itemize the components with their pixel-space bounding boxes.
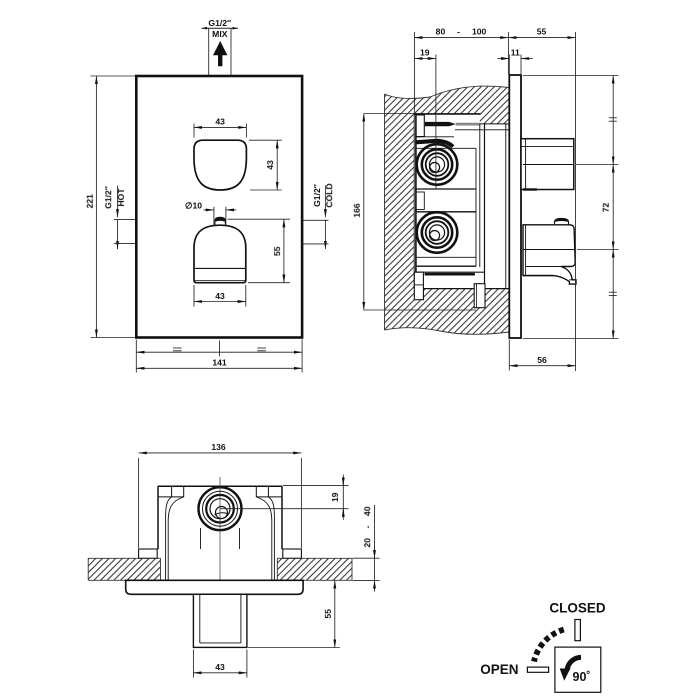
svg-text:80 - 100: 80 - 100	[436, 26, 487, 36]
svg-text:72: 72	[601, 203, 611, 213]
svg-text:43: 43	[215, 291, 225, 301]
svg-text:56: 56	[537, 355, 547, 365]
svg-text:90˚: 90˚	[573, 670, 591, 684]
svg-text:43: 43	[215, 662, 225, 672]
svg-text:166: 166	[352, 203, 362, 218]
svg-text:11: 11	[511, 48, 520, 58]
svg-text:55: 55	[272, 246, 282, 256]
svg-text:G1/2″: G1/2″	[312, 184, 322, 207]
svg-text:136: 136	[211, 442, 226, 452]
svg-text:19: 19	[330, 492, 340, 502]
svg-text:OPEN: OPEN	[480, 662, 518, 677]
svg-text:19: 19	[420, 48, 430, 58]
svg-text:55: 55	[323, 609, 333, 619]
svg-text:∅10: ∅10	[185, 201, 202, 211]
svg-text:55: 55	[537, 26, 547, 36]
svg-text:MIX: MIX	[212, 29, 228, 39]
svg-text:141: 141	[212, 357, 227, 367]
svg-text:G1/2″: G1/2″	[103, 186, 113, 209]
svg-text:CLOSED: CLOSED	[549, 601, 606, 616]
svg-text:COLD: COLD	[324, 183, 334, 207]
svg-text:HOT: HOT	[116, 188, 126, 207]
svg-text:20 - 40: 20 - 40	[362, 506, 372, 547]
svg-text:G1/2″: G1/2″	[208, 18, 231, 28]
svg-text:221: 221	[85, 194, 95, 209]
svg-text:43: 43	[215, 117, 225, 127]
svg-text:43: 43	[265, 160, 275, 170]
